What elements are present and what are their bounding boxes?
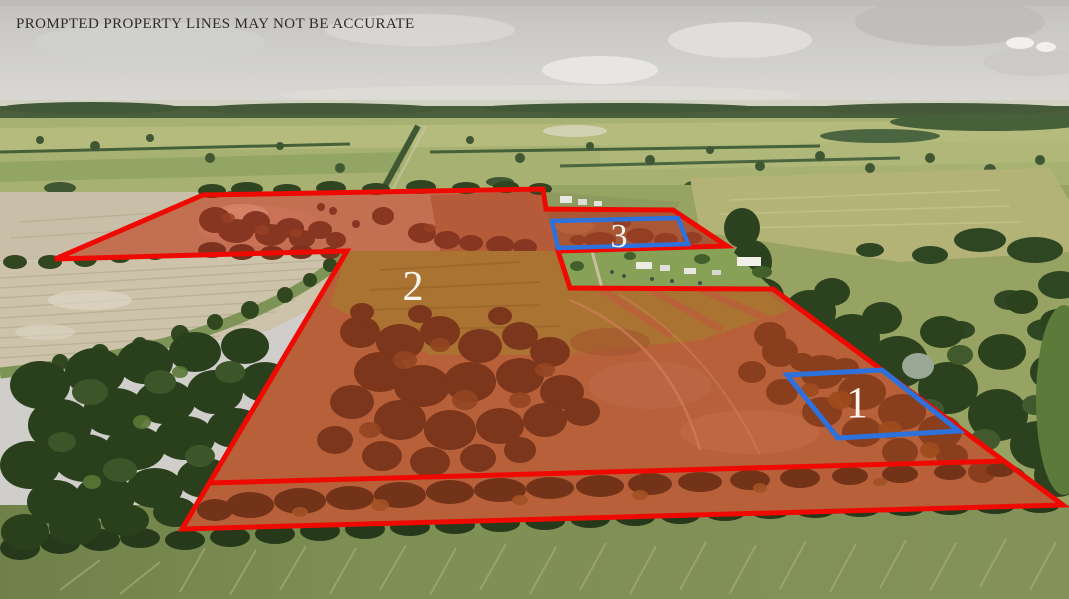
property-aerial-photo: 2 3 1 PROMPTED PROPERTY LINES MAY NOT BE…	[0, 0, 1069, 599]
disclaimer-text: PROMPTED PROPERTY LINES MAY NOT BE ACCUR…	[16, 16, 415, 32]
parcel-3-label: 3	[611, 218, 628, 255]
parcel-1-label: 1	[846, 378, 868, 427]
parcel-2-label: 2	[403, 264, 424, 310]
dead-tree	[902, 353, 934, 379]
